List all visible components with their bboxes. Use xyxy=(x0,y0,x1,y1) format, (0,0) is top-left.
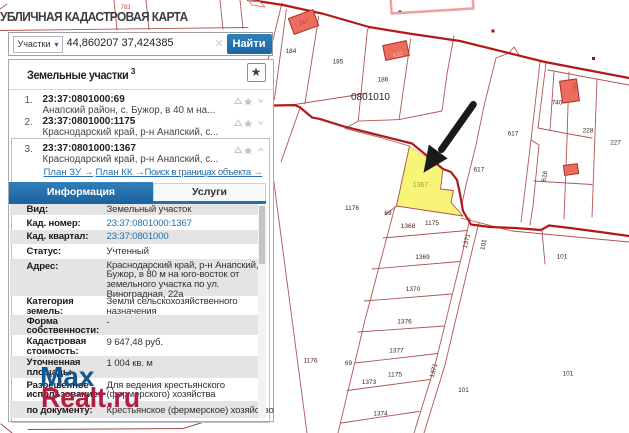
svg-text:1176: 1176 xyxy=(304,358,318,365)
svg-text:101: 101 xyxy=(563,371,574,378)
svg-text:740: 740 xyxy=(552,100,563,107)
svg-text:185: 185 xyxy=(333,59,344,66)
svg-text:101: 101 xyxy=(458,387,469,394)
svg-text:1367: 1367 xyxy=(413,182,429,189)
svg-text:1371: 1371 xyxy=(462,233,473,249)
svg-text:227: 227 xyxy=(610,140,621,147)
svg-text:228: 228 xyxy=(583,128,594,135)
svg-text:1368: 1368 xyxy=(401,223,416,230)
svg-text:101: 101 xyxy=(557,254,568,261)
svg-text:617: 617 xyxy=(474,167,485,174)
svg-text:1373: 1373 xyxy=(362,379,377,386)
svg-text:1377: 1377 xyxy=(389,348,404,355)
svg-text:1175: 1175 xyxy=(425,220,439,227)
svg-text:69: 69 xyxy=(384,210,392,217)
svg-text:532: 532 xyxy=(393,52,405,60)
svg-text:1376: 1376 xyxy=(397,319,412,326)
svg-text:1176: 1176 xyxy=(345,205,359,212)
svg-text:0801010: 0801010 xyxy=(351,92,390,103)
svg-text:1175: 1175 xyxy=(388,372,402,379)
svg-text:69: 69 xyxy=(345,360,353,367)
svg-text:1374: 1374 xyxy=(373,411,388,418)
svg-text:617: 617 xyxy=(508,131,519,138)
svg-text:1371: 1371 xyxy=(429,362,440,378)
svg-text:101: 101 xyxy=(480,238,489,250)
svg-text:616: 616 xyxy=(541,170,550,182)
svg-text:1369: 1369 xyxy=(415,254,430,261)
svg-text:720: 720 xyxy=(572,82,579,91)
svg-text:1370: 1370 xyxy=(406,286,421,293)
svg-text:184: 184 xyxy=(286,48,297,55)
svg-text:186: 186 xyxy=(378,77,389,84)
